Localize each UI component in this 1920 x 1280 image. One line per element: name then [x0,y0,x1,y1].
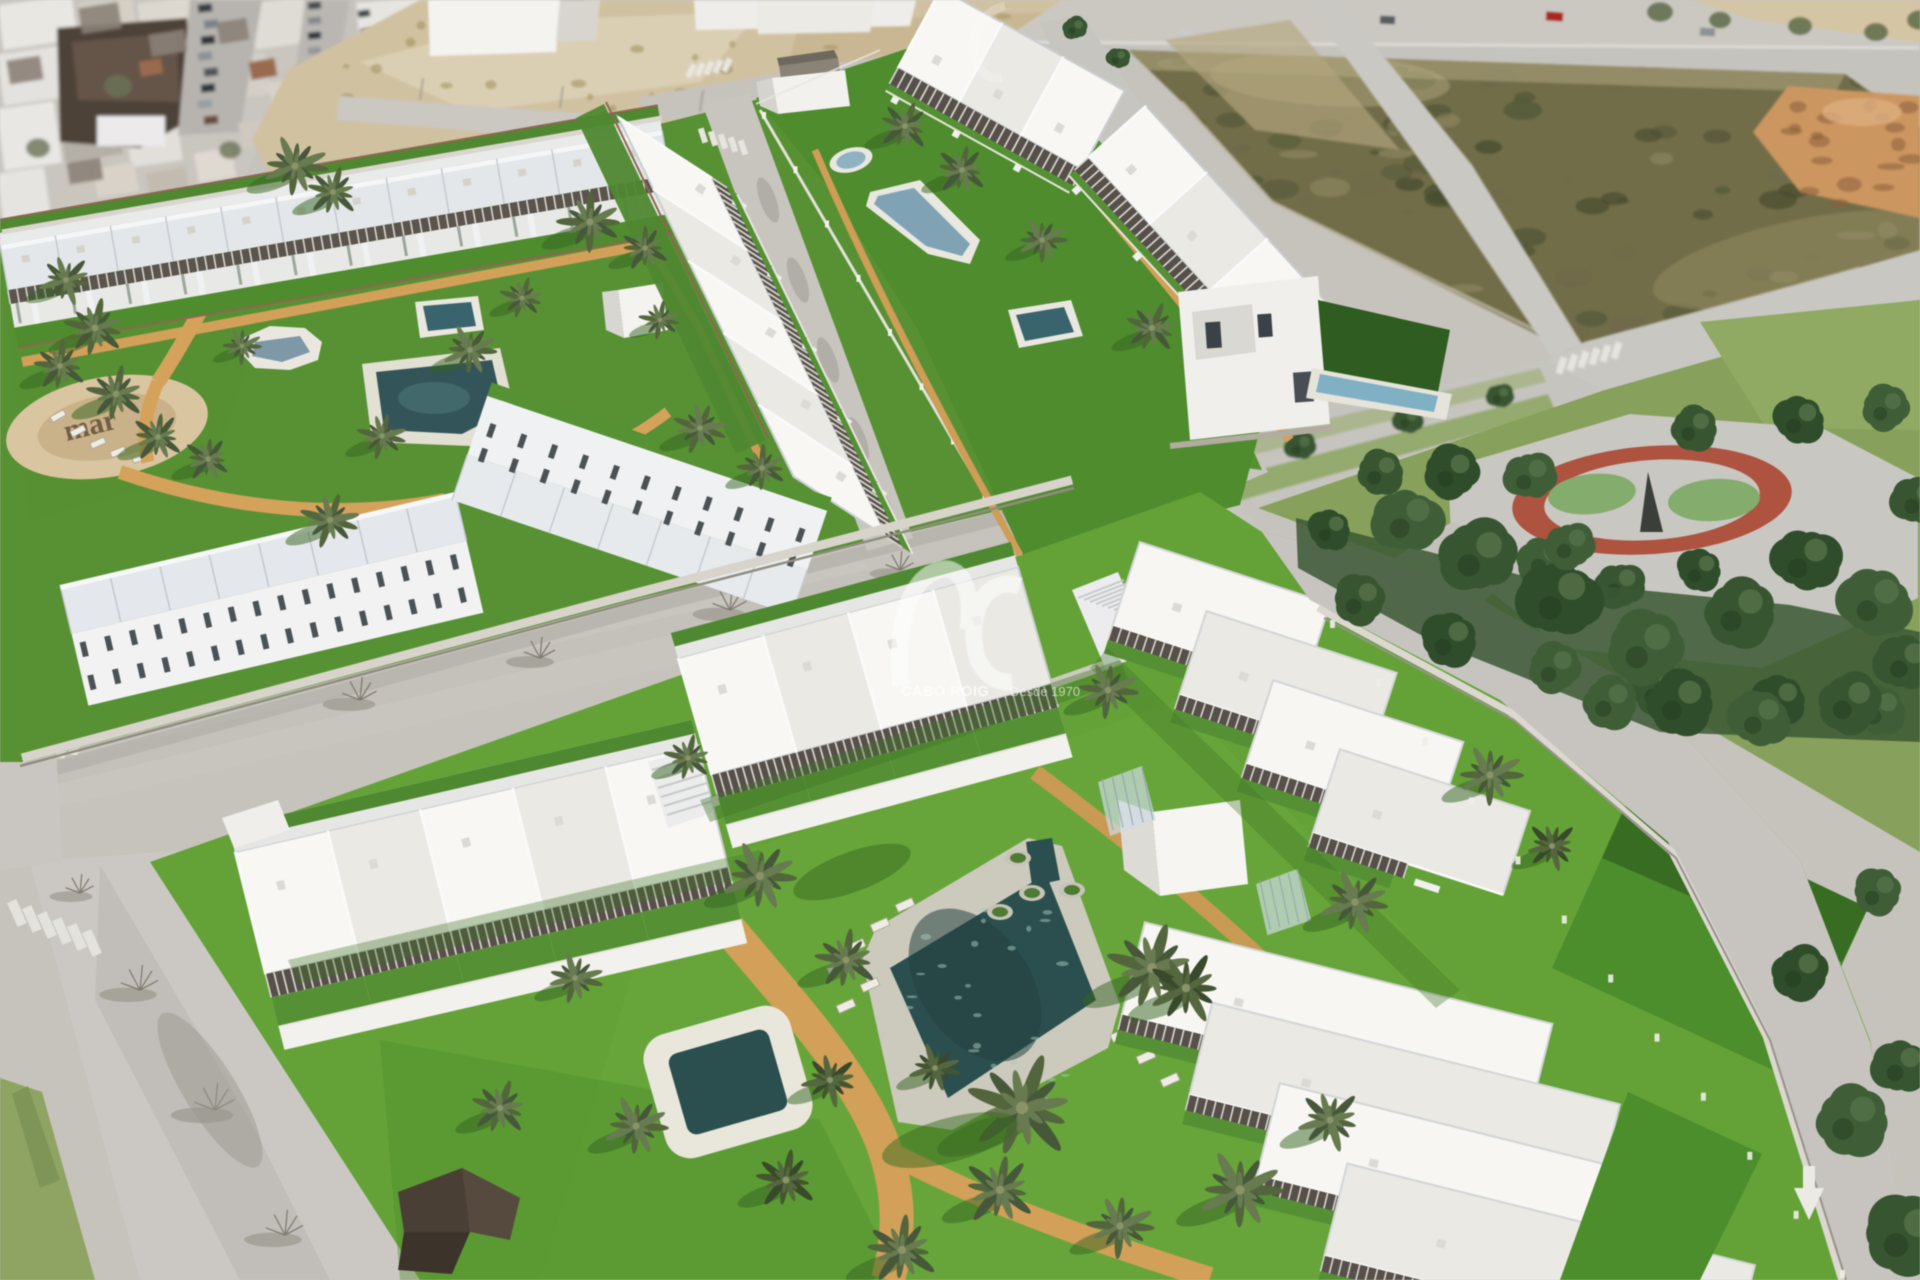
svg-text:Desde 1970: Desde 1970 [1010,684,1080,699]
svg-text:CABO ROIG: CABO ROIG [901,684,989,700]
